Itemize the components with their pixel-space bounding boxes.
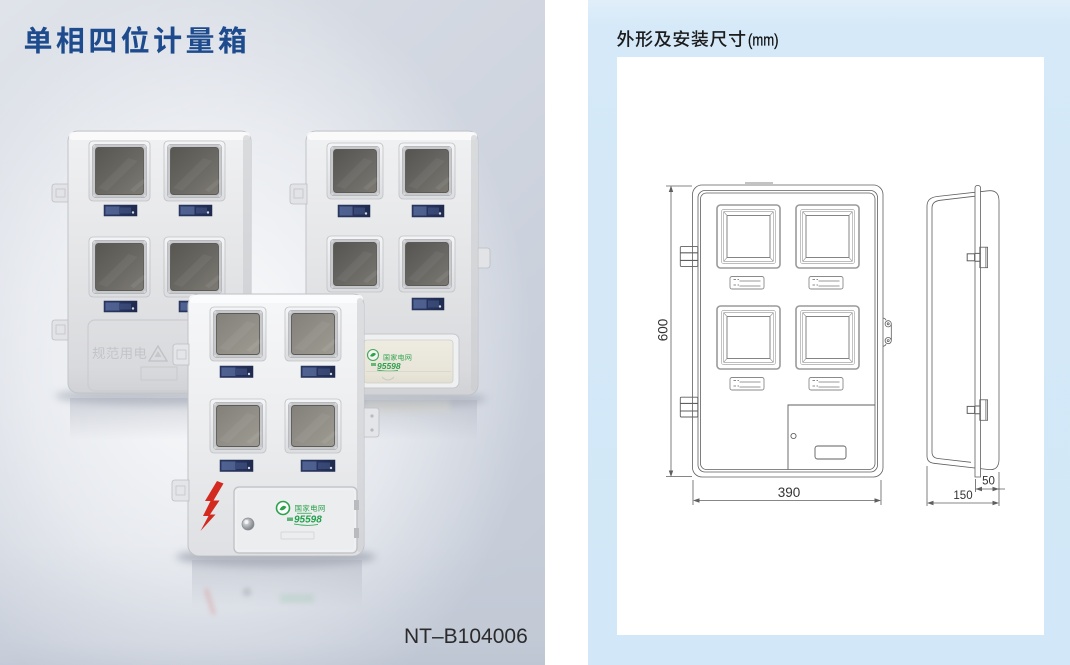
svg-text:600: 600 bbox=[656, 319, 671, 342]
svg-text:150: 150 bbox=[953, 490, 972, 502]
svg-text:(mm): (mm) bbox=[748, 31, 779, 50]
svg-text:95598: 95598 bbox=[294, 515, 322, 526]
svg-text:50: 50 bbox=[982, 476, 995, 488]
svg-text:95598: 95598 bbox=[377, 361, 401, 371]
svg-text:390: 390 bbox=[778, 485, 801, 500]
svg-text:NT–B104006: NT–B104006 bbox=[404, 625, 528, 648]
